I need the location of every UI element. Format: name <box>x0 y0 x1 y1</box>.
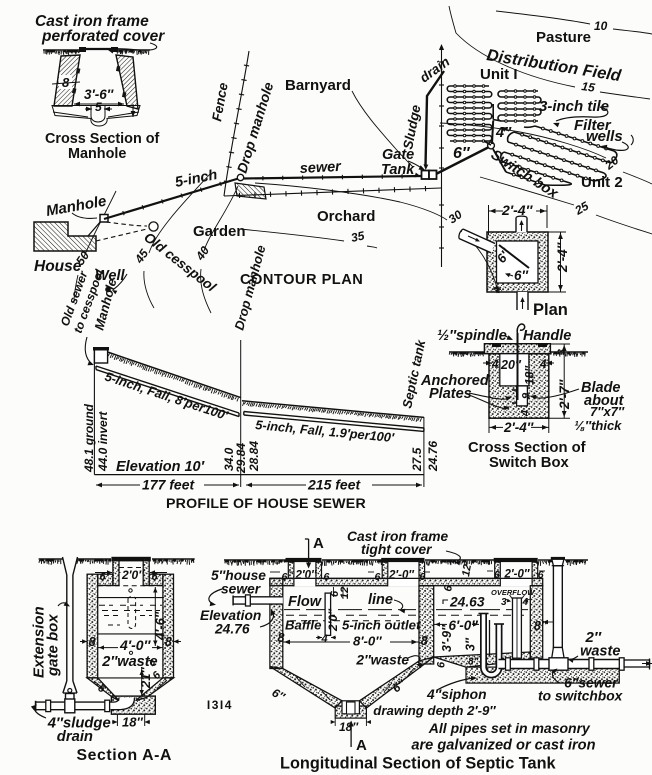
svg-text:12: 12 <box>339 587 351 599</box>
svg-text:Cross Section of: Cross Section of <box>45 131 160 147</box>
svg-text:24.63: 24.63 <box>449 595 485 610</box>
svg-text:Handle: Handle <box>523 328 571 344</box>
svg-text:All pipes set in masonry: All pipes set in masonry <box>428 720 591 736</box>
svg-text:A: A <box>313 535 324 552</box>
svg-text:4: 4 <box>321 633 328 645</box>
svg-text:10: 10 <box>594 19 608 33</box>
svg-text:21″: 21″ <box>138 667 153 689</box>
svg-text:Unit 2: Unit 2 <box>581 174 623 191</box>
svg-text:215 feet: 215 feet <box>307 477 361 493</box>
svg-text:8′-0″: 8′-0″ <box>353 634 382 649</box>
svg-text:wells: wells <box>586 128 623 145</box>
svg-text:to switchbox: to switchbox <box>538 689 624 704</box>
svg-text:OVERFLOW: OVERFLOW <box>491 588 535 597</box>
svg-text:Garden: Garden <box>193 223 246 240</box>
svg-text:18″: 18″ <box>523 365 537 385</box>
svg-text:6: 6 <box>436 661 448 668</box>
svg-text:sewer: sewer <box>299 159 342 177</box>
svg-text:8: 8 <box>421 634 428 648</box>
svg-text:PROFILE OF HOUSE SEWER: PROFILE OF HOUSE SEWER <box>166 496 366 512</box>
svg-text:15: 15 <box>581 79 596 95</box>
svg-text:House: House <box>34 258 82 275</box>
svg-text:4′-0″: 4′-0″ <box>119 637 152 653</box>
svg-text:sewer: sewer <box>221 582 261 597</box>
svg-text:tight cover: tight cover <box>361 542 432 557</box>
svg-text:Plates: Plates <box>429 386 472 402</box>
svg-text:gate box: gate box <box>45 614 62 677</box>
svg-text:drain: drain <box>57 729 93 745</box>
svg-text:6″: 6″ <box>514 268 529 283</box>
svg-text:Longitudinal Section of Septic: Longitudinal Section of Septic Tank <box>280 755 557 773</box>
svg-text:Manhole: Manhole <box>68 146 126 162</box>
svg-text:⅛″thick: ⅛″thick <box>574 418 622 433</box>
svg-text:perforated cover: perforated cover <box>41 28 165 45</box>
svg-text:48.1 ground: 48.1 ground <box>82 403 96 473</box>
svg-text:2′-4″: 2′-4″ <box>503 420 534 435</box>
svg-text:Flow: Flow <box>288 594 323 610</box>
svg-text:5-inch outlet: 5-inch outlet <box>342 618 421 633</box>
svg-text:28.84: 28.84 <box>247 441 261 472</box>
svg-text:18″: 18″ <box>122 715 143 730</box>
svg-text:27.5: 27.5 <box>410 447 424 472</box>
svg-text:are galvanized or cast iron: are galvanized or cast iron <box>411 738 595 754</box>
svg-text:Orchard: Orchard <box>317 208 375 225</box>
svg-text:6″: 6″ <box>453 145 471 162</box>
svg-text:Plan: Plan <box>533 301 568 319</box>
svg-text:I3I4: I3I4 <box>207 698 233 712</box>
svg-text:8: 8 <box>165 635 172 649</box>
svg-text:3″: 3″ <box>464 637 478 651</box>
svg-text:3′-9″: 3′-9″ <box>440 624 454 652</box>
svg-text:½″spindle: ½″spindle <box>437 328 507 344</box>
svg-text:Section A-A: Section A-A <box>77 747 173 764</box>
svg-text:4: 4 <box>522 597 529 608</box>
svg-text:5: 5 <box>95 100 102 114</box>
svg-text:4: 4 <box>491 359 499 371</box>
svg-text:4: 4 <box>520 410 532 417</box>
svg-text:Barnyard: Barnyard <box>285 77 351 94</box>
svg-text:8: 8 <box>278 631 285 645</box>
svg-text:2′0″: 2′0″ <box>121 568 145 582</box>
svg-text:3: 3 <box>501 597 507 608</box>
svg-text:29.84: 29.84 <box>234 443 248 474</box>
svg-text:3-inch tile: 3-inch tile <box>539 98 609 115</box>
svg-text:waste: waste <box>580 644 620 660</box>
svg-text:20″: 20″ <box>500 358 522 372</box>
svg-text:177 feet: 177 feet <box>142 477 195 493</box>
svg-text:4: 4 <box>539 359 547 371</box>
svg-text:18″: 18″ <box>339 720 359 734</box>
svg-text:Switch Box: Switch Box <box>489 455 570 471</box>
svg-text:9: 9 <box>521 392 533 399</box>
svg-text:4″siphon: 4″siphon <box>426 687 487 702</box>
svg-text:12: 12 <box>460 563 474 577</box>
svg-text:44.0 invert: 44.0 invert <box>96 411 110 472</box>
svg-text:Baffle: Baffle <box>285 618 321 633</box>
svg-text:Unit I: Unit I <box>480 66 518 83</box>
svg-text:24.76: 24.76 <box>214 622 250 637</box>
svg-text:line: line <box>368 592 393 608</box>
svg-text:Pasture: Pasture <box>536 29 591 46</box>
svg-text:24.76: 24.76 <box>426 441 440 472</box>
svg-text:2′-4″: 2′-4″ <box>501 202 534 218</box>
svg-text:8: 8 <box>89 635 96 649</box>
svg-text:drawing depth 2′-9″: drawing depth 2′-9″ <box>373 703 496 718</box>
svg-text:Elevation 10′: Elevation 10′ <box>116 459 205 475</box>
svg-text:Cross Section of: Cross Section of <box>468 440 586 456</box>
svg-text:7″x7″: 7″x7″ <box>590 404 625 419</box>
svg-text:A: A <box>356 737 367 754</box>
svg-text:8″: 8″ <box>468 657 480 668</box>
svg-text:2′0″: 2′0″ <box>326 608 340 632</box>
svg-text:2′-4″: 2′-4″ <box>555 242 570 273</box>
svg-text:Tank: Tank <box>381 162 415 178</box>
svg-text:2″waste: 2″waste <box>355 653 409 668</box>
